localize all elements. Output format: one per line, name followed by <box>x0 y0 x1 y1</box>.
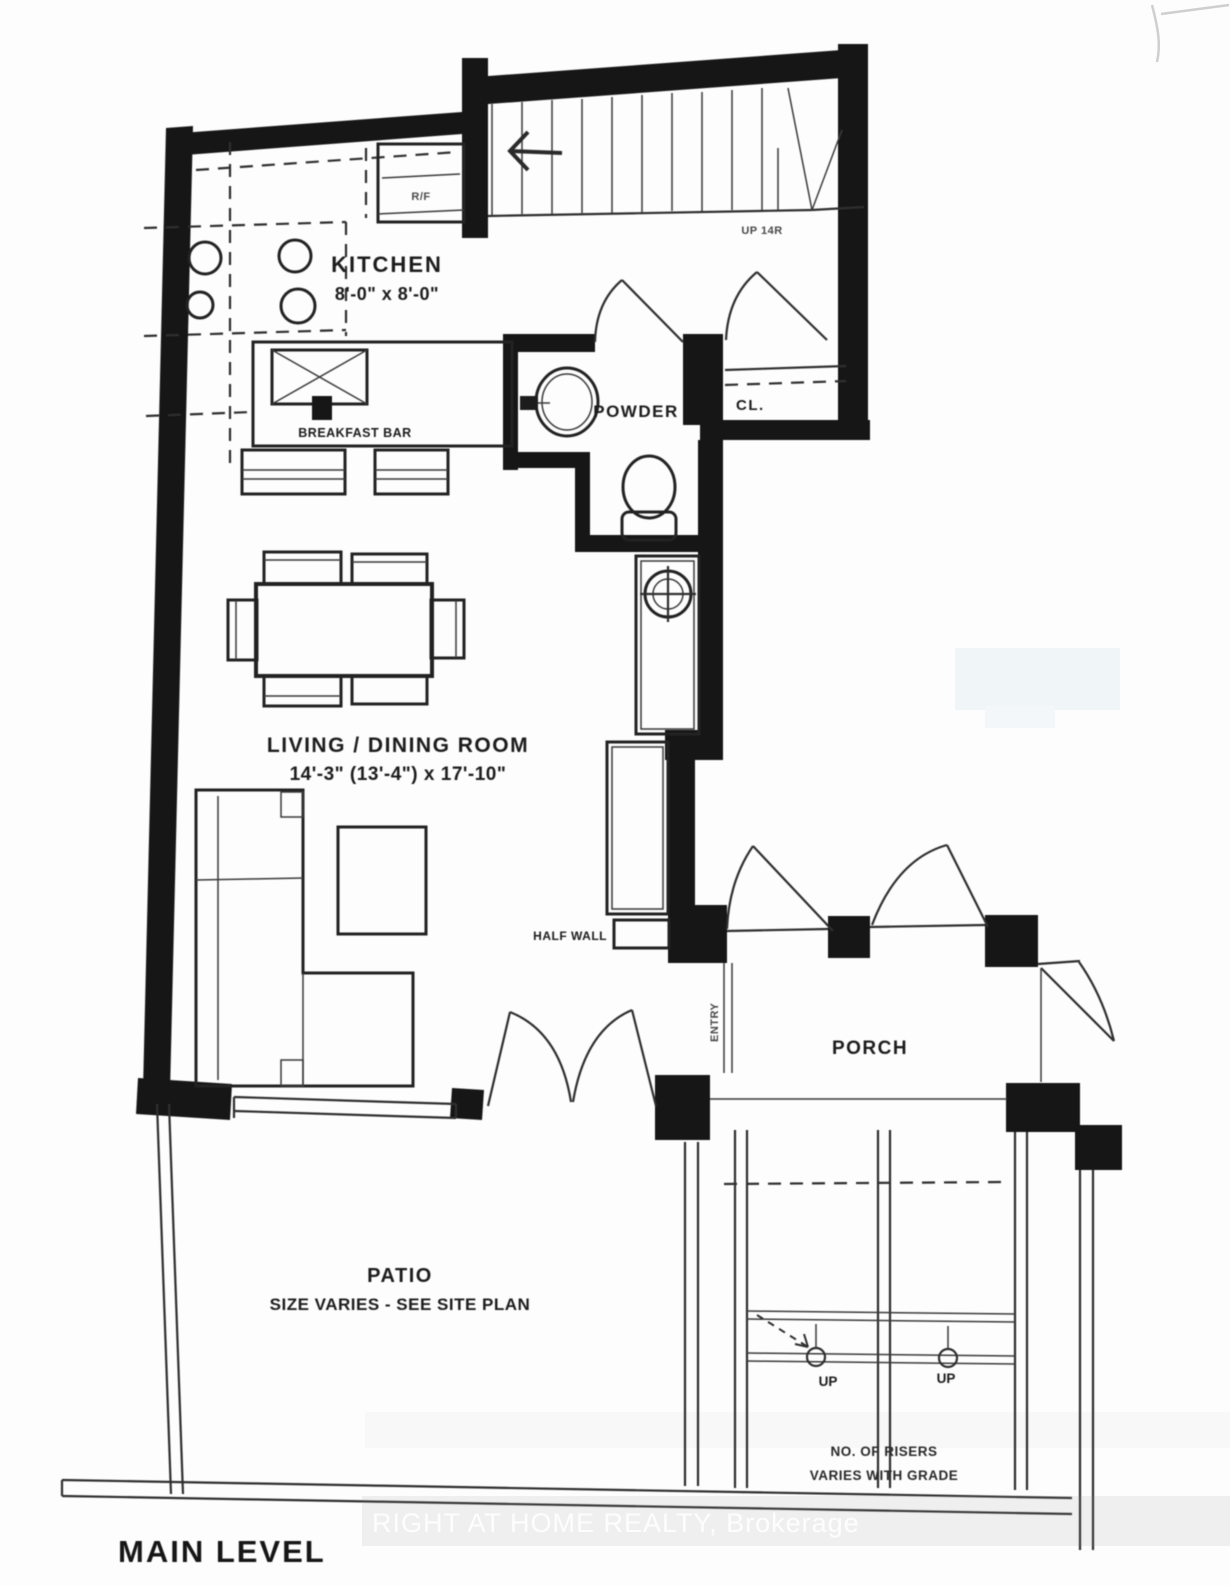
porch-post-bottom-right <box>1006 1083 1080 1132</box>
scan-artifacts <box>365 5 1230 1448</box>
risers-note-1: NO. OF RISERS <box>830 1444 937 1459</box>
breakfast-bar-label: BREAKFAST BAR <box>298 426 411 440</box>
half-wall <box>614 920 669 948</box>
brokerage-watermark: RIGHT AT HOME REALTY, Brokerage <box>362 1496 1230 1546</box>
living-dining-room: LIVING / DINING ROOM 14'-3" (13'-4") x 1… <box>196 552 529 1086</box>
porch-post-mid <box>828 916 870 958</box>
door-leaf <box>622 280 683 342</box>
risers-note-2: VARIES WITH GRADE <box>810 1468 959 1483</box>
door-swing <box>510 1012 571 1102</box>
rail-post <box>807 1348 825 1366</box>
rail-post <box>939 1349 957 1367</box>
porch-label: PORCH <box>832 1038 908 1059</box>
bar-stools <box>242 450 448 494</box>
porch-post-bottom-left <box>655 1075 710 1140</box>
faucet <box>312 396 332 420</box>
up-label-left: UP <box>819 1374 838 1389</box>
powder-sink <box>536 368 598 436</box>
stove-burners <box>187 240 315 323</box>
breakfast-bar-island: BREAKFAST BAR <box>253 342 512 446</box>
shaft-top-wall <box>575 535 700 552</box>
door-swing <box>727 846 753 929</box>
toilet <box>622 456 676 540</box>
lower-right-wall <box>668 758 695 915</box>
front-steps: UP UP NO. OF RISERS VARIES WITH GRADE <box>735 1130 1093 1550</box>
front-door-swing <box>1079 962 1114 1041</box>
kitchen-top-wall <box>168 112 462 156</box>
porch: PORCH ENTRY <box>709 845 1114 1184</box>
staircase: UP 14R <box>488 88 864 237</box>
left-wall <box>143 126 193 1092</box>
window-and-doors <box>234 1010 656 1118</box>
closet-bottom-wall <box>700 420 870 440</box>
porch-post-top-right <box>985 915 1038 967</box>
kitchen-dims: 8'-0" x 8'-0" <box>335 284 439 304</box>
counter-edge <box>196 152 458 170</box>
kitchen: R/F BREAKFAST BAR KITCHEN 8'-0" x 8'-0" <box>144 142 512 494</box>
right-wall <box>838 44 868 437</box>
coffee-table <box>338 827 426 934</box>
dining-set <box>228 552 464 706</box>
stair-up-label: UP 14R <box>741 225 782 237</box>
watermark-text: RIGHT AT HOME REALTY, Brokerage <box>372 1508 860 1538</box>
floor-plan-svg: UP 14R R/F BREAKFAST BAR <box>0 0 1230 1585</box>
door-swing <box>726 272 757 340</box>
closet-shelf <box>725 366 846 370</box>
closet-rod <box>725 381 846 385</box>
entry-label: ENTRY <box>709 1002 721 1042</box>
winder-line <box>812 130 842 210</box>
powder-label: POWDER <box>593 402 679 421</box>
door-swing <box>872 845 947 925</box>
door-leaf <box>632 1010 656 1106</box>
door-leaf <box>753 846 833 931</box>
powder-closet-divider <box>683 334 723 425</box>
winder-line <box>788 88 812 210</box>
patio-note: SIZE VARIES - SEE SITE PLAN <box>270 1295 531 1314</box>
cabinet <box>607 742 668 914</box>
half-wall-label: HALF WALL <box>533 929 607 943</box>
sectional-sofa <box>196 790 413 1086</box>
plan-title: MAIN LEVEL <box>118 1534 326 1569</box>
powder-step-wall <box>575 452 590 548</box>
porch-post-top-left <box>668 905 727 963</box>
door-leaf <box>757 272 827 340</box>
kitchen-label: KITCHEN <box>331 252 443 277</box>
door-leaf <box>947 845 988 927</box>
duct-symbol <box>640 566 696 622</box>
living-dining-dims: 14'-3" (13'-4") x 17'-10" <box>290 764 507 785</box>
closet: CL. <box>725 272 846 414</box>
living-dining-label: LIVING / DINING ROOM <box>267 734 529 757</box>
stair-direction-arrow <box>510 132 562 170</box>
stair-top-wall <box>462 50 842 106</box>
shaft-right-wall <box>698 440 723 740</box>
porch-post-bottom-right-2 <box>1075 1125 1122 1170</box>
door-swing <box>573 1010 632 1102</box>
closet-label: CL. <box>736 397 765 414</box>
window <box>234 1111 456 1118</box>
powder-room: POWDER <box>520 280 683 540</box>
door-swing <box>595 280 622 342</box>
fridge: R/F <box>378 144 464 222</box>
up-label-right: UP <box>937 1371 956 1386</box>
patio-label: PATIO <box>367 1265 433 1287</box>
door-leaf <box>488 1012 510 1106</box>
bottom-wall-left <box>136 1078 232 1120</box>
window <box>234 1097 456 1104</box>
floor-plan-page: UP 14R R/F BREAKFAST BAR <box>0 0 1230 1585</box>
fridge-label: R/F <box>411 191 430 203</box>
